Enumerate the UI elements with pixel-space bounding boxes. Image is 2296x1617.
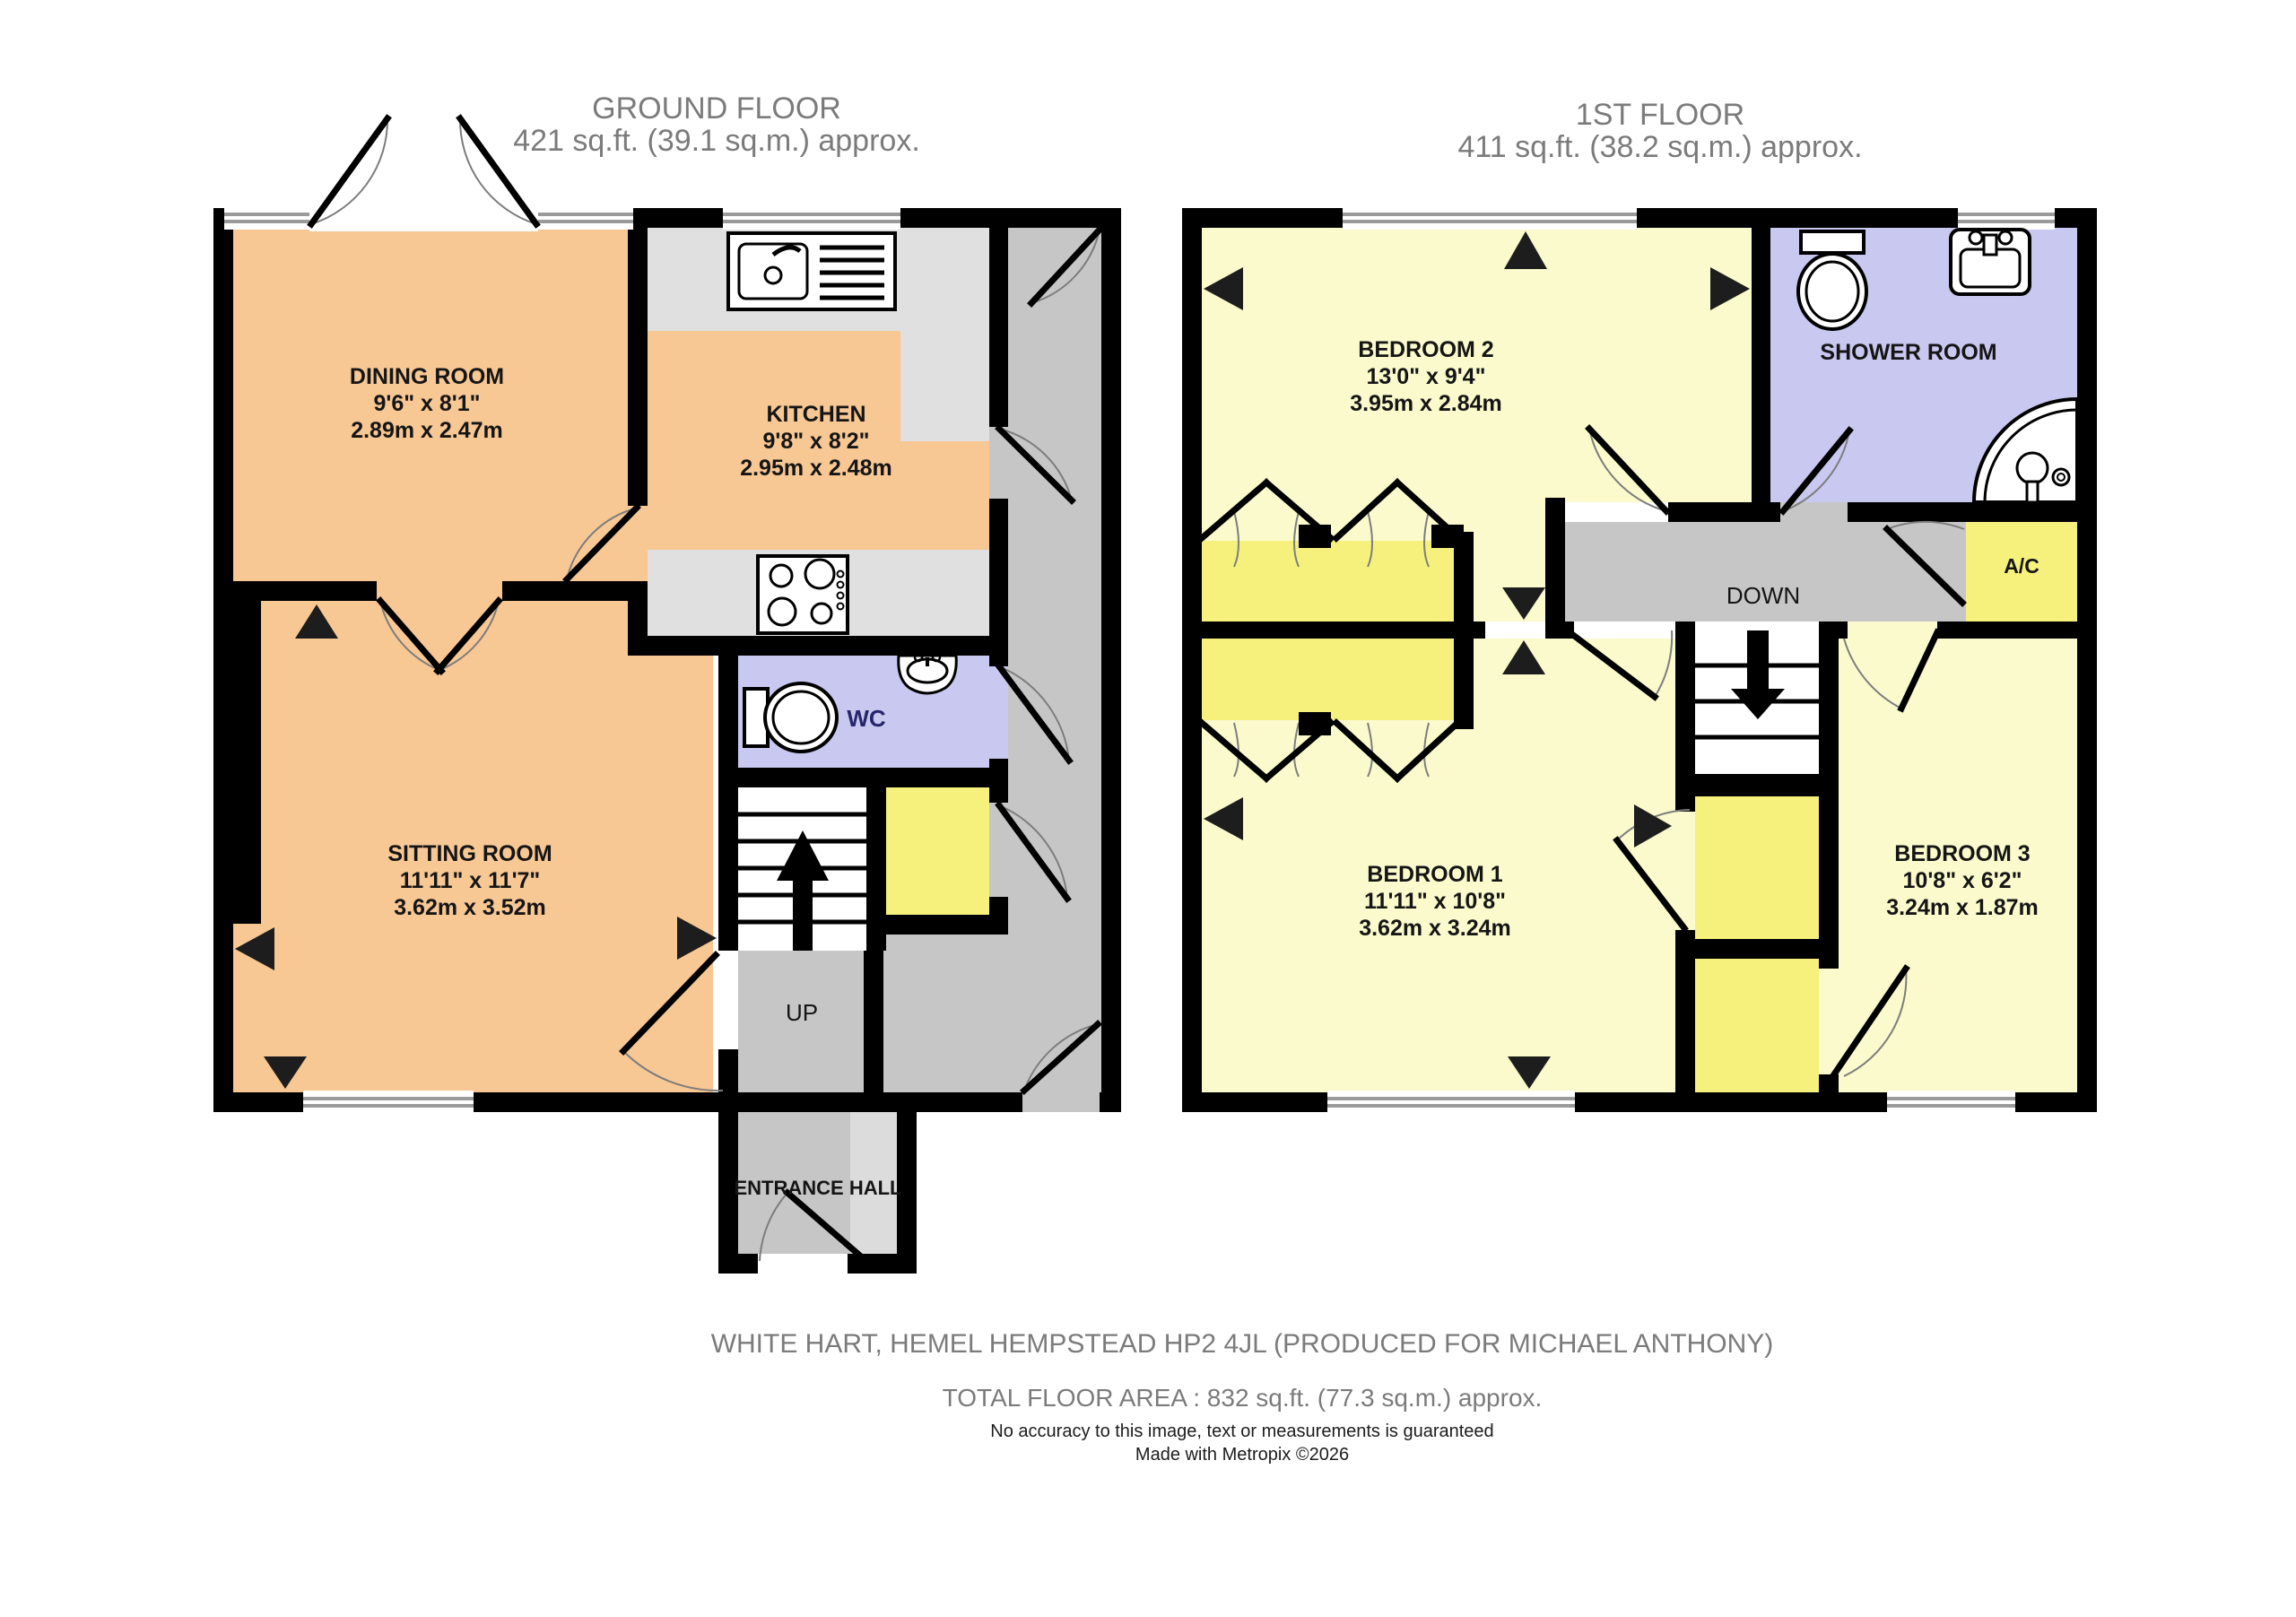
ground-floor-title: GROUND FLOOR 421 sq.ft. (39.1 sq.m.) app… [513,91,920,158]
kitchen-counter-right [900,228,989,441]
bedroom2-metric: 3.95m x 2.84m [1350,391,1502,416]
wc-toilet-icon [744,683,837,752]
dining-window-left [224,206,309,230]
kitchen-metric: 2.95m x 2.48m [740,456,892,481]
front-door-opening [758,1254,848,1274]
kitchen-wc-wall [648,636,1008,656]
entrance-hall-label: ENTRANCE HALL [735,1177,902,1199]
bedroom3-window [1887,1091,2015,1114]
footer-disclaimer: No accuracy to this image, text or measu… [990,1421,1493,1441]
wc-left-wall [718,656,738,768]
dining-window-right [538,206,633,230]
kitchen-name: KITCHEN [766,402,865,427]
dining-sitting-wall-right [502,581,648,601]
landing-left-wall [1545,498,1565,639]
stairs-bottom-wall [1675,774,1839,796]
cupboard-c-floor [1695,796,1823,939]
footer: WHITE HART, HEMEL HEMPSTEAD HP2 4JL (PRO… [711,1329,1774,1465]
sitting-room-name: SITTING ROOM [387,841,552,866]
bedroom2-shower-wall [1752,228,1770,502]
sitting-room-metric: 3.62m x 3.52m [394,895,546,920]
passage-rear-doorway [1022,1092,1100,1112]
cupboard-d-floor [1695,959,1823,1092]
ground-floor-area-text: 421 sq.ft. (39.1 sq.m.) approx. [513,124,920,158]
bed3-top-wall [1937,622,2097,639]
shower-window [1958,206,2055,230]
hob-icon [758,556,848,633]
stairs-right-wall [866,787,886,951]
dining-kitchen-wall [628,228,648,506]
kitchen-window [723,206,900,230]
shower-toilet-icon [1798,231,1866,329]
shower-bottom-wall [1668,502,2097,522]
kitchen-imperial: 9'8" x 8'2" [762,429,869,454]
first-floor-title: 1ST FLOOR 411 sq.ft. (38.2 sq.m.) approx… [1457,98,1862,164]
cupboard-d-doorway [1819,969,1839,1074]
bedroom1-window [1327,1091,1575,1114]
wardrobe-a-handle [1299,525,1331,548]
cupboard-cd-wall [1675,939,1839,959]
down-arrow-shaft [1747,630,1769,691]
entrance-hall-strip [850,1092,897,1254]
chimney-pier [213,581,261,924]
bedroom3-imperial: 10'8" x 6'2" [1903,868,2022,893]
wardrobe-a-handle2 [1431,525,1464,548]
footer-address: WHITE HART, HEMEL HEMPSTEAD HP2 4JL (PRO… [711,1329,1774,1359]
sitting-hall-wall [718,1049,738,1092]
bedroom1-imperial: 11'11" x 10'8" [1364,889,1506,914]
wc-basin-icon [899,654,957,693]
bedroom2-window [1343,206,1637,230]
dining-room-name: DINING ROOM [350,364,504,389]
cupboard-c-doorway [1675,812,1695,930]
sitting-window [303,1091,474,1114]
bedroom1-name: BEDROOM 1 [1367,862,1503,887]
floorplan-svg: GROUND FLOOR 421 sq.ft. (39.1 sq.m.) app… [0,0,2296,1617]
first-floor-plan: BEDROOM 2 13'0" x 9'4" 3.95m x 2.84m SHO… [1182,206,2097,1114]
footer-credit: Made with Metropix ©2026 [1135,1445,1349,1465]
wc-label: WC [847,705,886,732]
wc-doorway [989,666,1008,759]
hall-passage-wall [864,951,883,1092]
shower-room-label: SHOWER ROOM [1820,340,1996,365]
first-floor-title-text: 1ST FLOOR [1576,98,1744,132]
cupboard-bottom-wall [886,915,1008,935]
shower-basin-icon [1951,230,2030,294]
bedroom1-metric: 3.62m x 3.24m [1359,916,1511,941]
first-floor-area-text: 411 sq.ft. (38.2 sq.m.) approx. [1457,130,1862,164]
footer-total-area: TOTAL FLOOR AREA : 832 sq.ft. (77.3 sq.m… [943,1384,1543,1412]
wardrobe-b-handle [1299,712,1331,735]
floorplan-canvas: GROUND FLOOR 421 sq.ft. (39.1 sq.m.) app… [0,0,2296,1617]
up-arrow-shaft [793,877,813,951]
wardrobe-b-floor [1202,639,1454,720]
ground-floor-title-text: GROUND FLOOR [592,91,841,126]
stairs-left-wall [718,787,738,951]
sink-unit-icon [728,233,895,309]
bedroom2-imperial: 13'0" x 9'4" [1367,364,1486,389]
bedroom3-metric: 3.24m x 1.87m [1886,895,2039,920]
bed3-door-jamb [1839,622,1848,639]
ac-label: A/C [2004,554,2039,578]
up-label: UP [786,999,818,1026]
bedroom2-name: BEDROOM 2 [1358,337,1493,362]
down-label: DOWN [1726,582,1800,609]
bed2-bed1-wall [1182,622,1485,639]
wardrobe-a-floor [1202,541,1454,622]
dining-room-metric: 2.89m x 2.47m [351,418,503,443]
sitting-room-floor [233,581,713,1092]
dining-room-imperial: 9'6" x 8'1" [373,391,480,416]
wardrobe-right-wall [1454,532,1474,729]
wc-bottom-wall [718,768,1008,787]
sitting-room-imperial: 11'11" x 11'7" [400,868,541,893]
bedroom3-name: BEDROOM 3 [1894,841,2030,866]
ground-floor-plan: DINING ROOM 9'6" x 8'1" 2.89m x 2.47m KI… [213,118,1111,1274]
ground-cupboard-floor [886,787,989,915]
